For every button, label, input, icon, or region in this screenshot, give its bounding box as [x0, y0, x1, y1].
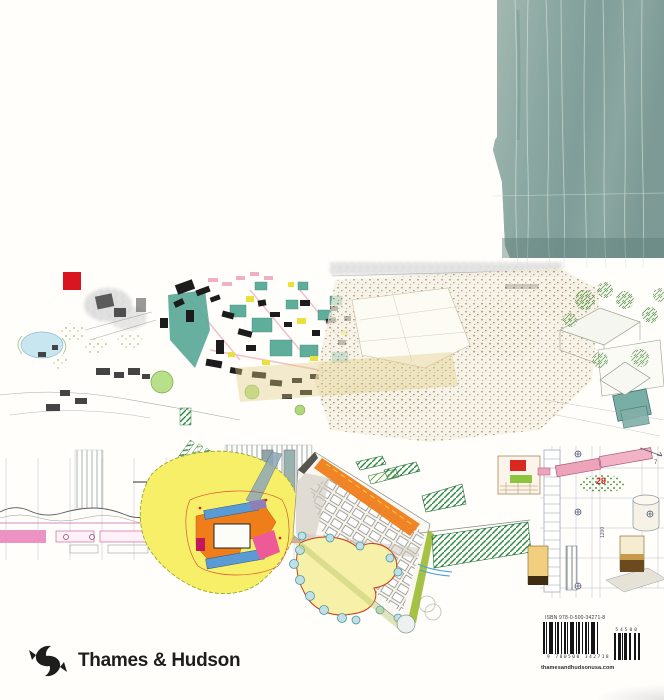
triangular-masterplan: [290, 452, 435, 633]
hatched-column-left: [75, 450, 103, 508]
yellow-site-plan: [140, 451, 298, 593]
tip-circle: [397, 615, 415, 633]
watercolor-dark-streak: [518, 10, 519, 140]
book-back-cover: 29 7 1200 Tham: [0, 0, 664, 700]
barcode-block: ISBN 978-0-500-34271-8 9 780500 342718 5…: [541, 615, 651, 685]
thames-hudson-dolphins-logo-icon: [28, 641, 68, 681]
red-green-detail-sketch: [498, 456, 540, 494]
masterplan-collage-band: [0, 254, 664, 458]
arrow-label: 7: [654, 460, 658, 466]
ean-digits: 9 780500 342718: [547, 655, 610, 660]
red-square-marker: [63, 272, 81, 290]
courtyard: [214, 524, 250, 548]
dimension-label: 1200: [600, 527, 606, 538]
isbn-text: ISBN 978-0-500-34271-8: [545, 615, 651, 621]
barcode: [543, 622, 599, 654]
thames-hudson-logo: Thames & Hudson: [28, 636, 288, 686]
publisher-website: thamesandhudsonusa.com: [541, 665, 651, 671]
technical-detail-drawing: 29 7 1200: [528, 446, 664, 598]
green-embankment: [432, 522, 531, 568]
cylinder-top: [633, 495, 659, 505]
page-corner-shade: [594, 684, 664, 700]
watercolor-panel: [488, 0, 664, 268]
green-wedge-sketch: [422, 484, 466, 512]
teal-park-wedge: [168, 290, 210, 368]
barcode-addon: [614, 633, 640, 660]
publisher-name: Thames & Hudson: [78, 650, 240, 672]
detail-number-label: 29: [596, 476, 606, 486]
